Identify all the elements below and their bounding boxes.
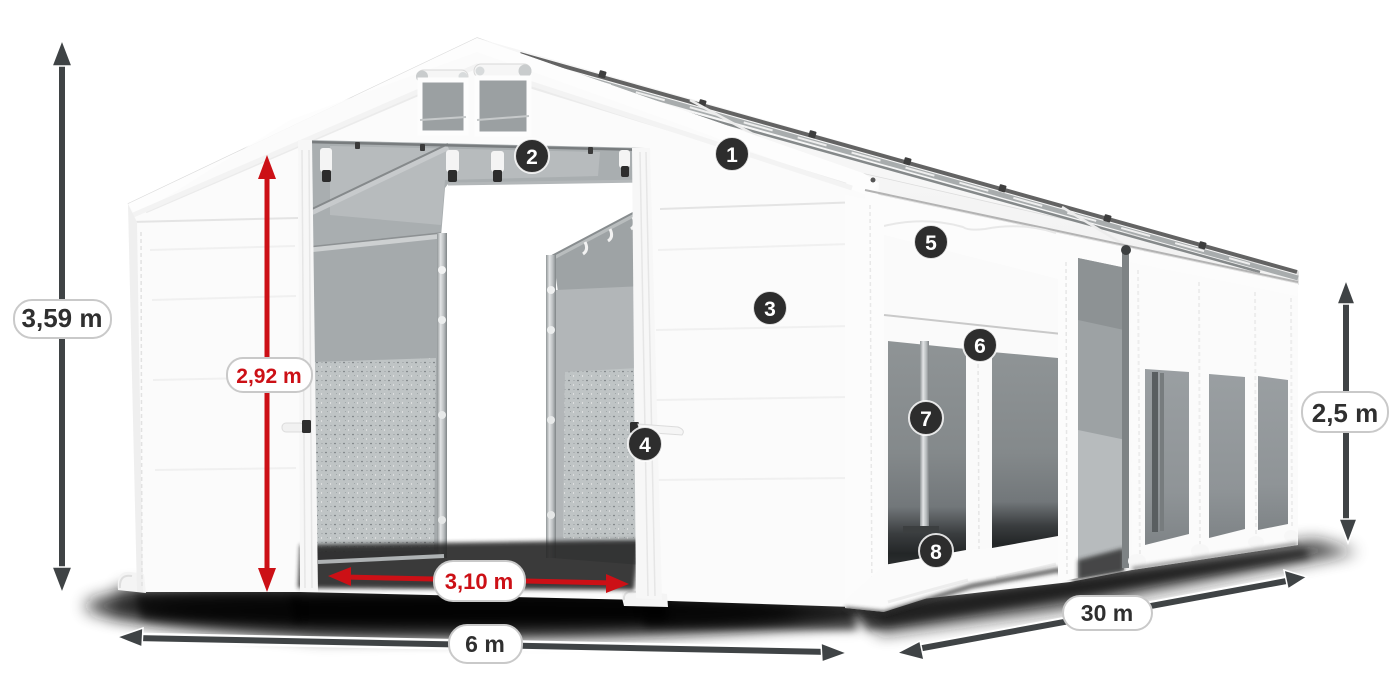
svg-text:5: 5 — [925, 232, 937, 255]
svg-text:6 m: 6 m — [465, 631, 505, 657]
svg-text:30 m: 30 m — [1081, 600, 1133, 626]
svg-text:2: 2 — [526, 146, 538, 169]
svg-text:2,5 m: 2,5 m — [1312, 398, 1379, 428]
svg-text:3,10 m: 3,10 m — [445, 569, 514, 594]
svg-text:8: 8 — [930, 541, 942, 564]
svg-text:1: 1 — [726, 144, 738, 167]
svg-text:4: 4 — [639, 434, 651, 457]
svg-text:6: 6 — [974, 335, 986, 358]
svg-text:2,92 m: 2,92 m — [236, 365, 301, 388]
svg-text:3,59 m: 3,59 m — [22, 303, 103, 333]
svg-text:3: 3 — [764, 298, 776, 321]
svg-text:7: 7 — [920, 408, 932, 431]
